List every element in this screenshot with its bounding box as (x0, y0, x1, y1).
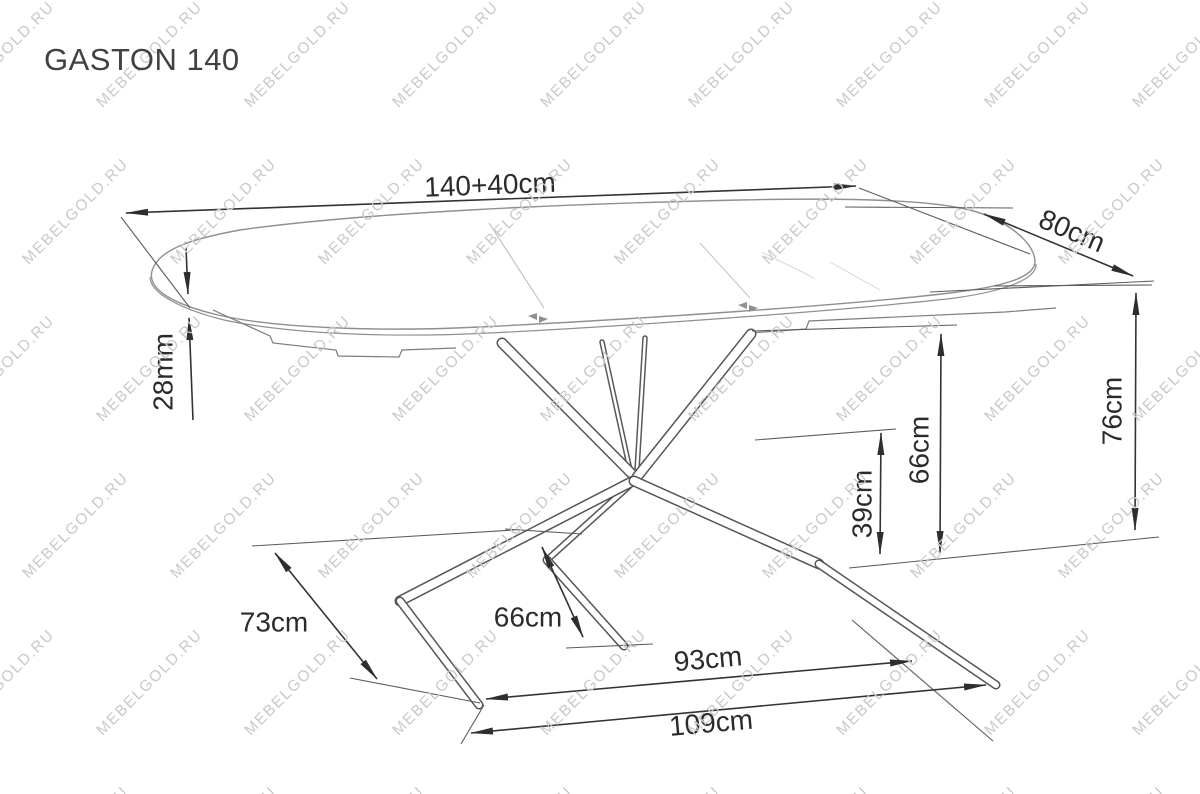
dimension-height-label: 76cm (1096, 377, 1127, 445)
dimension-length-label: 140+40cm (424, 167, 557, 203)
dimension-height-line (1135, 293, 1136, 530)
tabletop-outline (151, 199, 1035, 329)
dimension-underframe-height-line (940, 334, 941, 553)
technical-drawing-page: MEBELGOLD.RUMEBELGOLD.RUMEBELGOLD.RUMEBE… (0, 0, 1200, 794)
dimension-base-depth-label: 73cm (240, 606, 308, 637)
dimension-thickness-label: 28mm (147, 333, 178, 411)
dimension-span-inner-label: 93cm (673, 640, 744, 677)
table-technical-drawing: 140+40cm 80cm 28mm 76cm 66cm 39cm 73cm 6… (0, 0, 1200, 794)
dimension-underframe-height-label: 66cm (903, 416, 934, 484)
upper-arm-right (637, 334, 751, 477)
dimension-span-outer-label: 109cm (668, 704, 754, 742)
product-title: GASTON 140 (44, 42, 240, 78)
dimension-hub-height-label: 39cm (846, 470, 877, 538)
dimension-foot-length-label: 66cm (494, 601, 562, 632)
dimension-hub-height-line (880, 433, 881, 554)
tabletop (150, 199, 1056, 357)
